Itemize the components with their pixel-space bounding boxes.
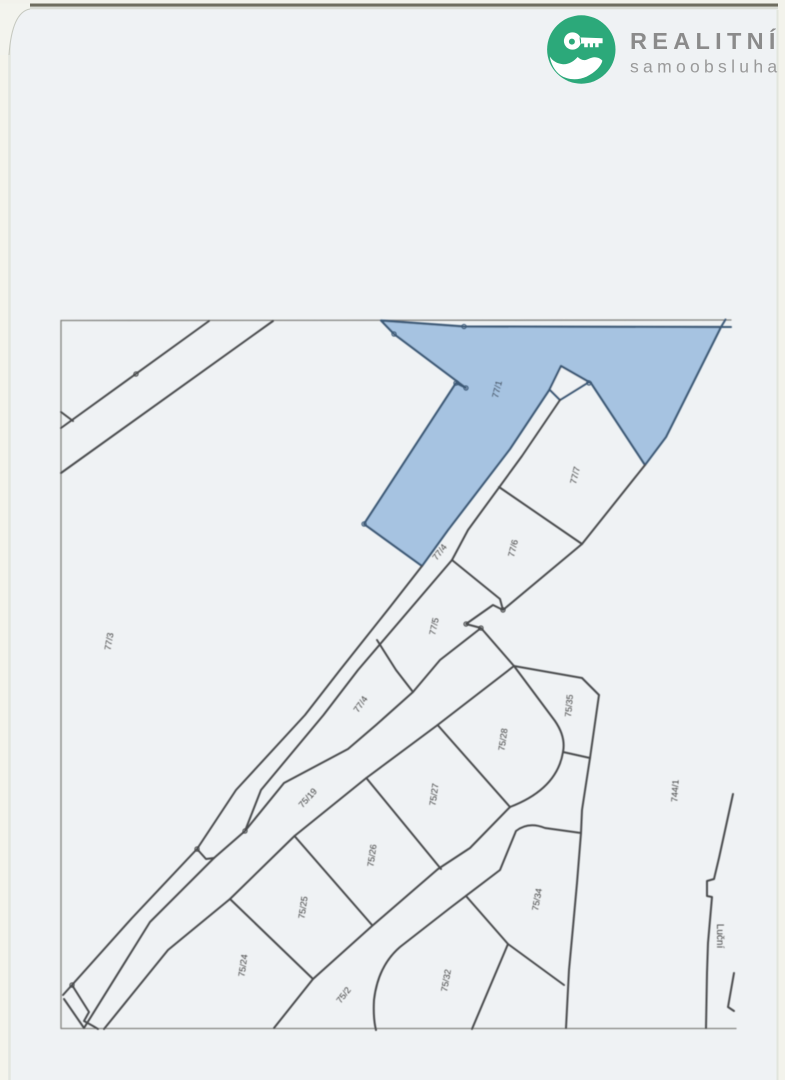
svg-text:Luční: Luční	[714, 924, 725, 949]
svg-text:75/35: 75/35	[563, 694, 575, 717]
svg-text:REALITNÍ: REALITNÍ	[630, 27, 781, 54]
svg-text:744/1: 744/1	[669, 779, 680, 802]
svg-text:samoobsluha: samoobsluha	[630, 57, 781, 77]
